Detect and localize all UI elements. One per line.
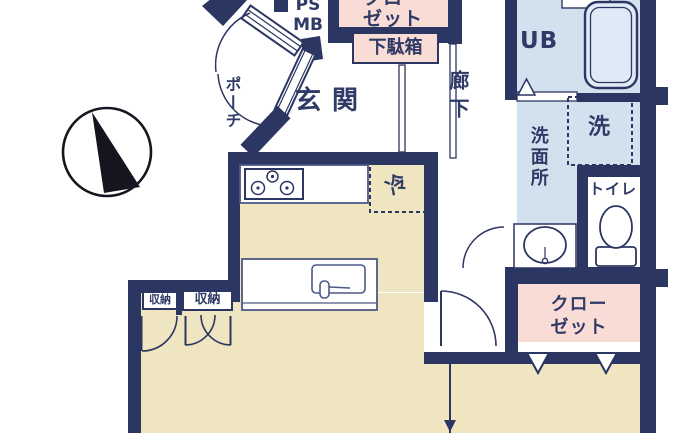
unit-bath-label: UB (520, 28, 558, 54)
storage-right-label: 収納 (182, 290, 233, 311)
closet-top-label: クロー ゼット (336, 0, 450, 30)
vanity-sink (514, 224, 576, 268)
sink-counter (242, 259, 377, 310)
closet-main-label: クロー ゼット (518, 293, 640, 339)
floor-plan: PS MB クロー ゼット 下駄箱 玄関 ポーチ 廊下 UB 洗面所 洗 トイレ… (0, 0, 700, 433)
meter-box-label: MB (284, 15, 332, 35)
porch-label: ポーチ (222, 76, 240, 130)
washroom-door-arc (463, 227, 504, 268)
toilet-fixture (596, 206, 636, 266)
washing-machine-label: 洗 (588, 115, 610, 140)
hallway-label: 廊下 (446, 70, 469, 126)
genkan-step-line (399, 65, 405, 152)
fixtures-layer (0, 0, 700, 433)
toilet-label: トイレ (589, 181, 637, 198)
storage-door-arcs (142, 315, 232, 351)
faucet (320, 281, 329, 298)
bathtub (562, 0, 637, 88)
compass-icon (63, 108, 151, 196)
section-arrow-line (444, 364, 456, 433)
washroom-label: 洗面所 (527, 126, 548, 189)
entrance-label: 玄関 (295, 87, 369, 117)
stove-counter (240, 165, 368, 203)
bath-door-triangle (518, 79, 535, 95)
pipe-space-label: PS (284, 0, 332, 15)
ps-mb-label: PS MB (284, 0, 332, 36)
shoe-cabinet-label: 下駄箱 (352, 32, 439, 64)
folding-door-mark (595, 353, 617, 373)
storage-left-label: 収納 (142, 291, 178, 310)
folding-door-mark (527, 353, 549, 373)
living-door-arc (441, 291, 496, 346)
